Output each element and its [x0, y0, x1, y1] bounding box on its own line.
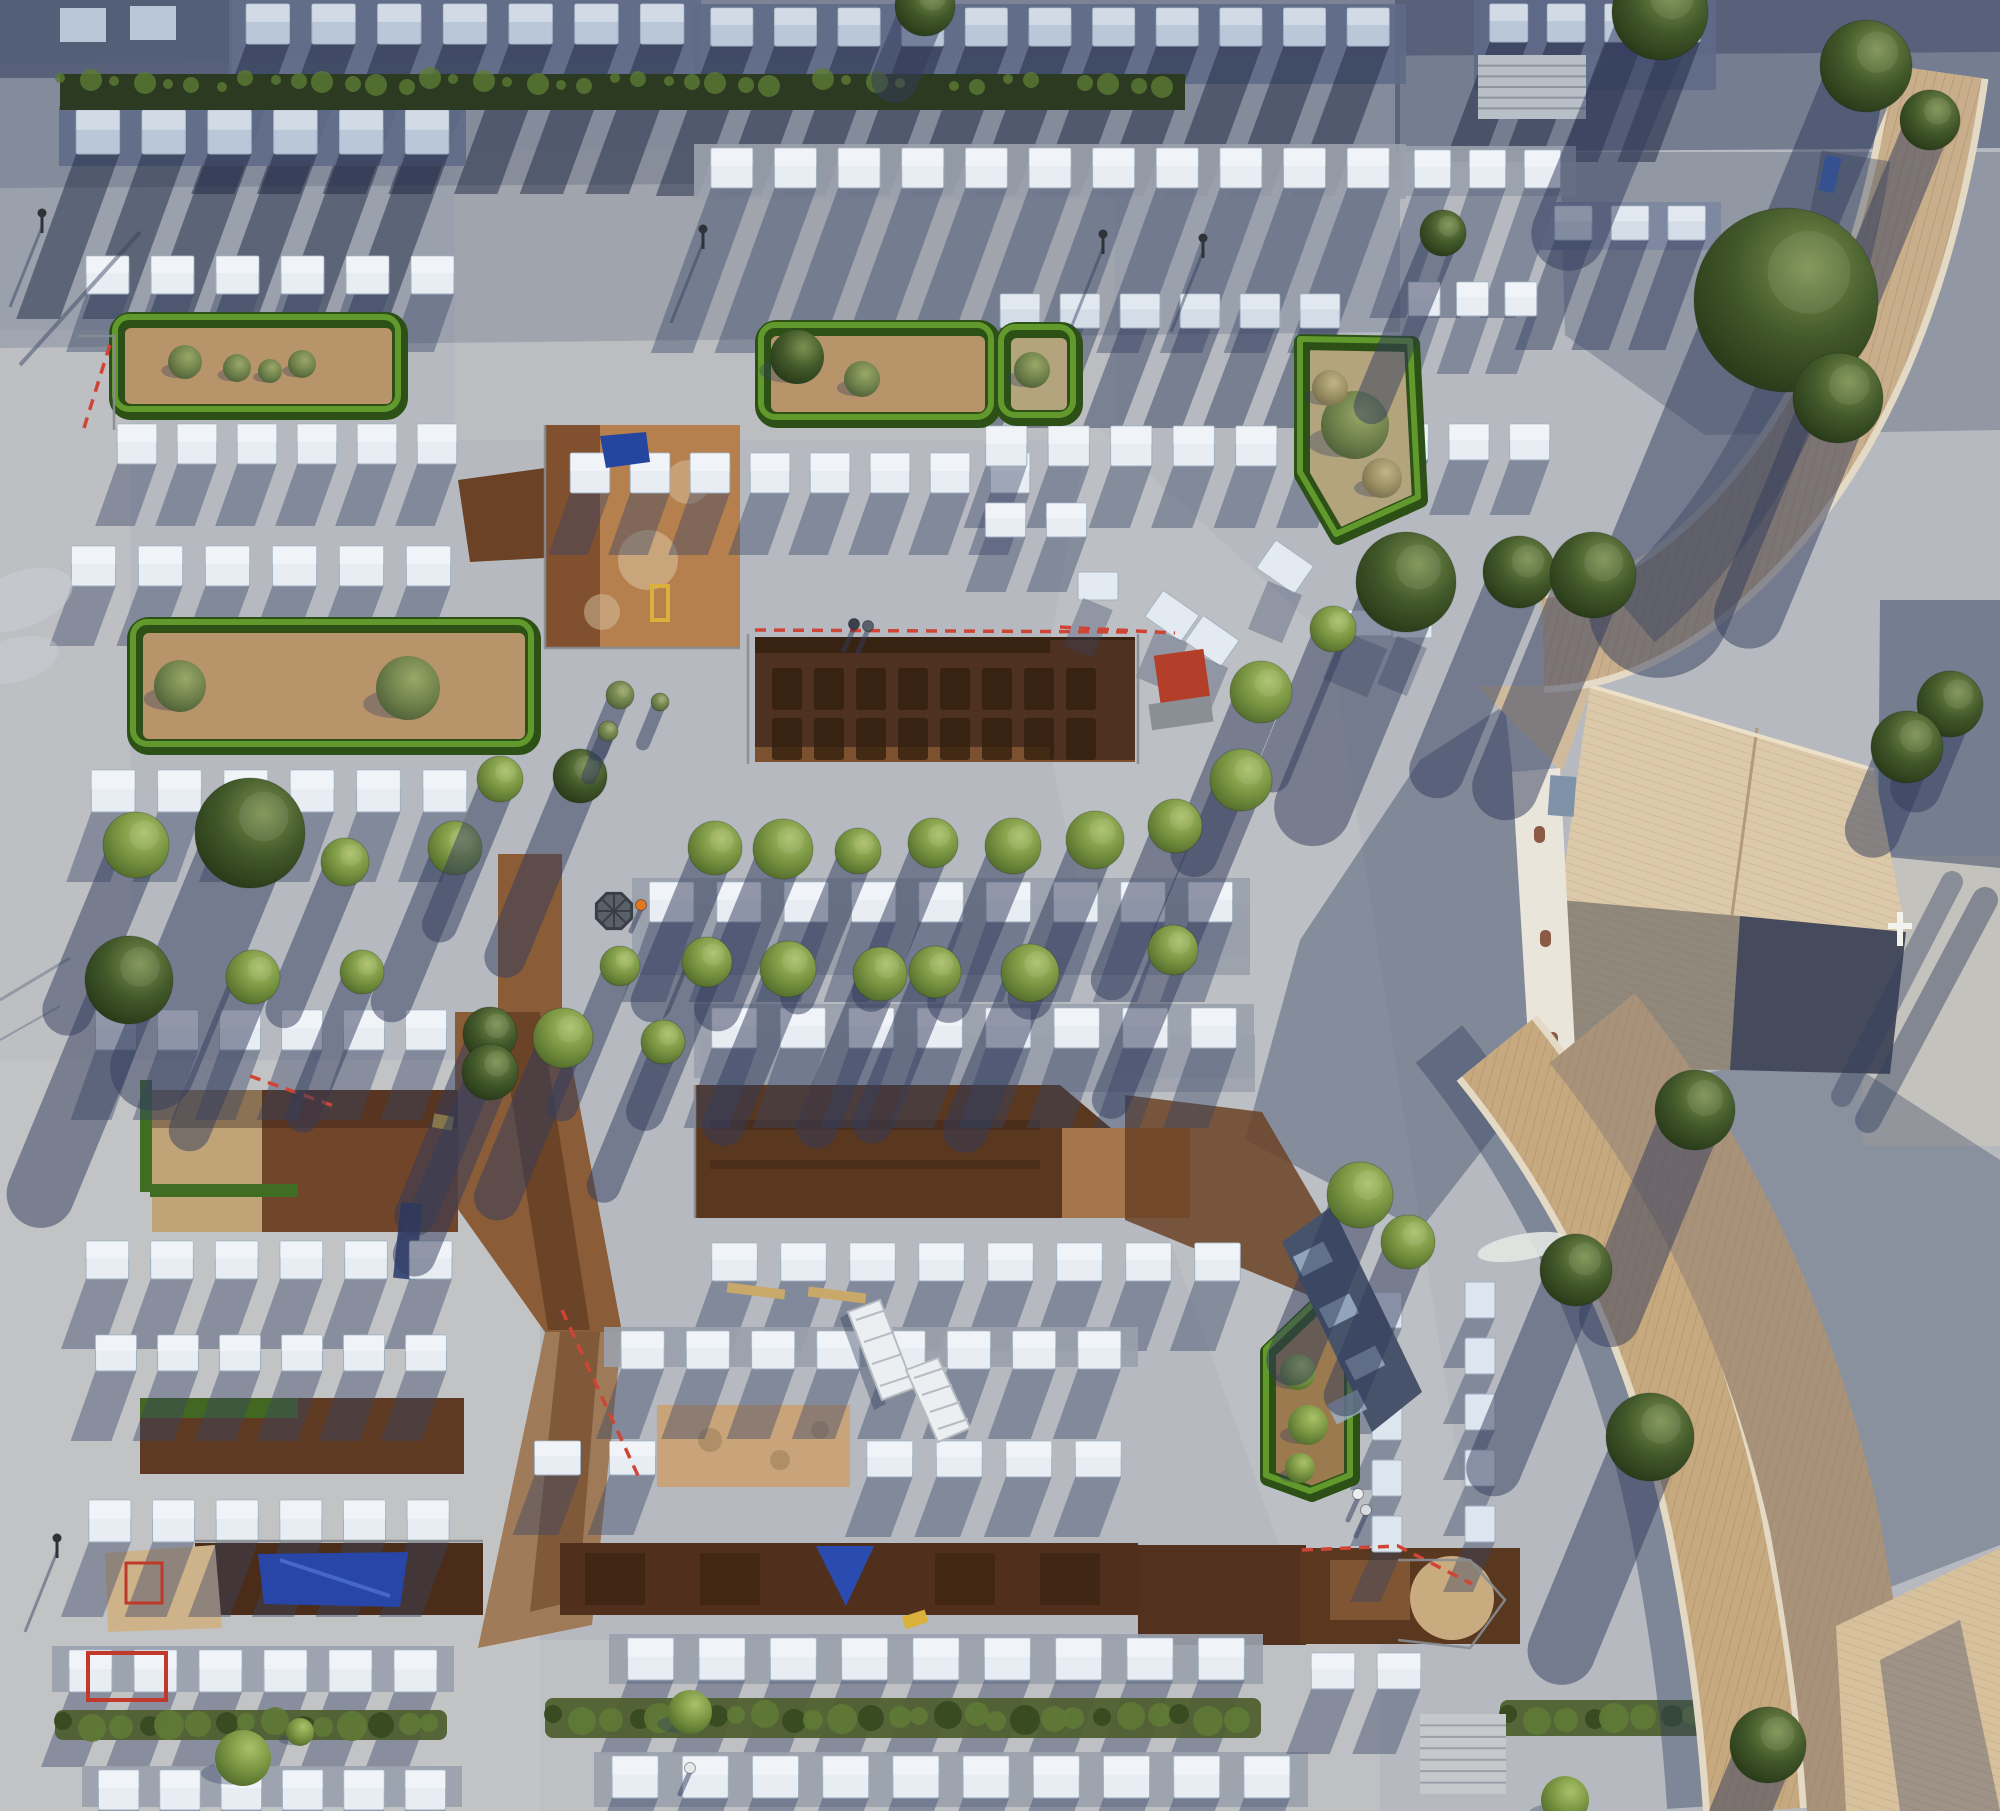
hedgerow-clump	[803, 1710, 823, 1730]
hedgerow-clump	[751, 1700, 779, 1728]
tomb-cover-highlight	[407, 1500, 449, 1519]
hedgerow-clump	[78, 1714, 106, 1742]
shape	[1540, 930, 1551, 947]
hedge-top-lit	[502, 77, 512, 87]
tomb-cover-highlight	[986, 426, 1027, 444]
hedge-top-lit	[704, 72, 726, 94]
tree-highlight	[1396, 545, 1441, 590]
tomb-cover-highlight	[1668, 206, 1705, 221]
tomb-cover-highlight	[71, 546, 115, 564]
tomb-cover-highlight	[177, 424, 217, 442]
tomb-cover-highlight	[711, 148, 753, 166]
tomb-cover-highlight	[1111, 426, 1152, 444]
grave-cut	[982, 718, 1012, 760]
tomb-cover-highlight	[1174, 1756, 1220, 1775]
tomb-cover-highlight	[357, 424, 397, 442]
tree-highlight	[120, 947, 160, 987]
tomb-cover-highlight	[1347, 148, 1389, 166]
hedgerow-clump	[420, 1714, 438, 1732]
tree-highlight	[340, 844, 362, 866]
shape	[1548, 775, 1577, 817]
tree-highlight	[1857, 32, 1898, 73]
tomb-cover-highlight	[208, 110, 251, 130]
tomb-cover-highlight	[378, 4, 421, 22]
tree-highlight	[617, 685, 630, 698]
tomb-cover-highlight	[963, 1756, 1009, 1775]
tree-highlight	[1829, 364, 1870, 405]
tomb-cover-highlight	[158, 1335, 199, 1351]
lamp-head	[38, 209, 47, 218]
grave-cut	[940, 668, 970, 710]
grave-cut	[940, 718, 970, 760]
grave-cut	[856, 668, 886, 710]
hedge-top-lit	[217, 82, 227, 92]
shrub	[154, 660, 206, 712]
tree-highlight	[239, 792, 289, 842]
grave-cut	[898, 718, 928, 760]
tomb-cover-highlight	[1524, 150, 1560, 167]
tomb-shadow	[1265, 588, 1285, 636]
tomb-cover-highlight	[220, 1335, 261, 1351]
shape	[584, 594, 620, 630]
hedgerow-clump	[1062, 1707, 1084, 1729]
hedgerow-clump	[1148, 1703, 1172, 1727]
tomb-cover-highlight	[965, 8, 1007, 25]
tree-highlight	[1024, 951, 1050, 977]
hedge-top-lit	[473, 70, 495, 92]
tomb-cover-highlight	[1127, 1638, 1173, 1657]
hedgerow-clump	[109, 1715, 133, 1739]
hedge-top-lit	[399, 79, 415, 95]
grave-cut	[982, 668, 1012, 710]
tomb-cover-highlight	[1156, 148, 1198, 166]
hedgerow-clump	[827, 1704, 857, 1734]
tree-highlight	[1328, 612, 1349, 633]
tomb-cover-highlight	[329, 1650, 372, 1669]
tomb-cover-highlight	[1126, 1243, 1172, 1260]
hedge-top-lit	[664, 76, 674, 86]
shape	[710, 1160, 1040, 1169]
tomb-cover-highlight	[1240, 294, 1280, 309]
tomb-cover-highlight	[965, 148, 1007, 166]
hedgerow-clump	[237, 1713, 255, 1731]
shrub	[288, 350, 316, 378]
hedge-top-lit	[1003, 74, 1013, 84]
tree-highlight	[358, 956, 378, 976]
hedgerow-clump	[1169, 1704, 1189, 1724]
tree-highlight	[129, 820, 159, 850]
hedgerow-clump	[154, 1710, 184, 1740]
tomb-cover-highlight	[344, 1335, 385, 1351]
hedgerow-clump	[185, 1711, 211, 1737]
tomb-cover-highlight	[1006, 1441, 1052, 1457]
tomb-cover-highlight	[1505, 282, 1537, 297]
hedgerow-clump	[1193, 1706, 1223, 1736]
hedge-top-lit	[448, 74, 458, 84]
tomb-cover-highlight	[312, 4, 355, 22]
tomb-cover-highlight	[1449, 424, 1489, 440]
tomb-cover-highlight	[1033, 1756, 1079, 1775]
lamp-head	[1099, 230, 1108, 239]
grave-cut	[898, 668, 928, 710]
tomb-cover-highlight	[823, 1756, 869, 1775]
tomb-cover-highlight	[76, 110, 119, 130]
tomb-cover-highlight	[712, 1243, 758, 1260]
tomb-cover-highlight	[711, 8, 753, 25]
tomb-cover-highlight	[1547, 4, 1585, 21]
hedge-top-lit	[291, 73, 307, 89]
tomb-cover-highlight	[947, 1331, 990, 1348]
tomb-cover-highlight	[1054, 1008, 1099, 1026]
tomb-cover-highlight	[1120, 294, 1160, 309]
tomb-cover-highlight	[867, 1441, 913, 1457]
hedge-top-lit	[134, 72, 156, 94]
tomb-cover	[1078, 572, 1118, 600]
tomb-cover-highlight	[340, 110, 383, 130]
hedgerow-clump	[965, 1702, 989, 1726]
lamp-head	[53, 1534, 62, 1543]
hedgerow-clump	[313, 1717, 333, 1737]
lamp-head	[699, 225, 708, 234]
tomb-cover-highlight	[160, 1770, 200, 1788]
tomb-cover-highlight	[919, 1243, 965, 1260]
hedge-top-lit	[949, 81, 959, 91]
shrub	[1288, 1405, 1328, 1445]
tomb-cover	[1465, 1506, 1495, 1542]
hedgerow-clump	[1117, 1702, 1145, 1730]
hedge-top-lit	[556, 80, 566, 90]
hedge-top-lit	[55, 73, 65, 83]
tomb-cover-highlight	[575, 4, 618, 22]
tomb-cover-highlight	[750, 453, 790, 471]
hedgerow-clump	[599, 1708, 623, 1732]
tomb-cover-highlight	[346, 256, 389, 273]
tomb-cover-highlight	[1000, 294, 1040, 309]
shrub	[376, 656, 440, 720]
tomb-cover-highlight	[237, 424, 277, 442]
hedgerow-clump	[1010, 1705, 1040, 1735]
tomb-cover-highlight	[1046, 503, 1086, 518]
tomb-cover	[1465, 1282, 1495, 1318]
tomb-cover-highlight	[1093, 148, 1135, 166]
hedge-top-lit	[345, 76, 361, 92]
tomb-cover-highlight	[152, 1500, 194, 1519]
tree-highlight	[659, 1026, 679, 1046]
hedgerow-clump	[54, 1712, 72, 1730]
hedge-top-lit	[758, 75, 780, 97]
tomb-cover-highlight	[902, 148, 944, 166]
tree-highlight	[484, 1051, 509, 1076]
tomb-cover-highlight	[1284, 8, 1326, 25]
tomb-cover-highlight	[423, 770, 467, 789]
shape	[700, 1553, 760, 1605]
tree-highlight	[875, 954, 899, 978]
hedgerow-clump	[934, 1701, 962, 1729]
tomb-cover-highlight	[216, 1500, 258, 1519]
tomb-cover-highlight	[274, 110, 317, 130]
tomb-cover-highlight	[838, 148, 880, 166]
shrub	[258, 359, 282, 383]
tomb-cover-highlight	[158, 770, 202, 789]
tomb-cover-highlight	[1469, 150, 1505, 167]
hedgerow-clump	[1523, 1707, 1551, 1735]
grave-cut	[1024, 668, 1054, 710]
shrub	[1285, 1453, 1315, 1483]
tomb-cover-highlight	[842, 1638, 888, 1657]
hedge-top-lit	[311, 71, 333, 93]
tomb-cover-highlight	[936, 1441, 982, 1457]
shrub	[770, 330, 824, 384]
hedge-top-lit	[1023, 72, 1039, 88]
tree-highlight	[658, 695, 666, 703]
tomb-cover-highlight	[838, 8, 880, 25]
tomb-cover-highlight	[216, 256, 259, 273]
hedgerow-clump	[261, 1707, 289, 1735]
hedge-top-lit	[1131, 78, 1147, 94]
tomb-cover-highlight	[893, 1756, 939, 1775]
tree-highlight	[616, 951, 634, 969]
tomb-cover-highlight	[612, 1756, 658, 1775]
hedged-plot	[133, 622, 533, 747]
tree-highlight	[1353, 1170, 1383, 1200]
tree-highlight	[1007, 825, 1032, 850]
tree-highlight	[1943, 679, 1973, 709]
tomb-cover-highlight	[215, 1241, 258, 1258]
tree-highlight	[777, 827, 804, 854]
hedge-dark	[60, 74, 1185, 110]
shrub	[223, 354, 251, 382]
grave-cut	[1024, 718, 1054, 760]
shape	[1138, 1545, 1306, 1645]
tomb-cover-highlight	[142, 110, 185, 130]
shape	[585, 1553, 645, 1605]
tomb-cover-highlight	[850, 1243, 896, 1260]
tomb-cover-highlight	[1013, 1331, 1056, 1348]
tree-highlight	[557, 1016, 584, 1043]
tomb-cover-highlight	[1198, 1638, 1244, 1657]
tomb-cover-highlight	[1029, 8, 1071, 25]
tomb-cover-highlight	[1236, 426, 1277, 444]
tomb-cover-highlight	[535, 1441, 581, 1456]
tomb-cover-highlight	[1220, 8, 1262, 25]
tomb-cover-highlight	[411, 256, 454, 273]
tomb-cover-highlight	[640, 4, 683, 22]
shape	[458, 468, 545, 562]
tree-highlight	[928, 824, 951, 847]
tomb-cover-highlight	[1414, 150, 1450, 167]
shrub	[844, 361, 880, 397]
tree-highlight	[1089, 818, 1115, 844]
hedge-top-lit	[576, 78, 592, 94]
tomb-cover-highlight	[1173, 426, 1214, 444]
tomb-cover-highlight	[1244, 1756, 1290, 1775]
tree-highlight	[702, 943, 725, 966]
hedgerow-clump	[544, 1705, 562, 1723]
tree-highlight	[1900, 720, 1932, 752]
tree-highlight	[1768, 231, 1851, 314]
tomb-cover-highlight	[280, 1241, 323, 1258]
shrub	[1362, 458, 1402, 498]
tomb-cover-highlight	[1029, 148, 1071, 166]
tomb-cover-highlight	[1220, 148, 1262, 166]
grave-cut	[814, 668, 844, 710]
tree-highlight	[1438, 216, 1459, 237]
tomb-cover-highlight	[282, 1335, 323, 1351]
tomb-cover-highlight	[1093, 8, 1135, 25]
tomb-cover-highlight	[339, 546, 383, 564]
tomb-cover-highlight	[781, 1243, 827, 1260]
aerial-photo-stage: Aerial top-down drone photograph of a Me…	[0, 0, 2000, 1811]
tomb-cover-highlight	[1195, 1243, 1241, 1260]
hedgerow-clump	[568, 1707, 596, 1735]
tomb-cover	[1465, 1338, 1495, 1374]
person	[1361, 1505, 1372, 1516]
shrub	[168, 345, 202, 379]
tomb-cover-highlight	[752, 1331, 795, 1348]
tomb-cover-highlight	[264, 1650, 307, 1669]
tomb-cover-highlight	[1078, 1331, 1121, 1348]
tomb-cover-highlight	[281, 256, 324, 273]
person	[685, 1763, 696, 1774]
hedge-top-lit	[630, 71, 646, 87]
shape	[60, 8, 106, 42]
tomb-cover-highlight	[272, 546, 316, 564]
tomb-cover-highlight	[1075, 1441, 1121, 1457]
shrub	[1312, 370, 1348, 406]
shape	[1730, 916, 1906, 1074]
tree-highlight	[485, 1014, 509, 1038]
tomb-cover-highlight	[1056, 1638, 1102, 1657]
shrub	[1014, 352, 1050, 388]
hedgerow-clump	[727, 1706, 745, 1724]
tomb-cover-highlight	[343, 1500, 385, 1519]
tree-highlight	[1641, 1404, 1681, 1444]
tomb-cover-highlight	[443, 4, 486, 22]
bush	[668, 1690, 712, 1734]
tomb-cover-highlight	[290, 770, 334, 789]
shape	[770, 1450, 790, 1470]
hedgerow-clump	[782, 1709, 806, 1733]
tomb-cover-highlight	[151, 1241, 194, 1258]
hedge-top-lit	[527, 73, 549, 95]
hedged-plot	[115, 317, 400, 412]
hedgerow-clump	[399, 1713, 421, 1735]
hedge-top-lit	[237, 70, 253, 86]
tomb-cover-highlight	[405, 1770, 445, 1788]
hedged-plot	[1001, 327, 1075, 418]
tomb-cover-highlight	[988, 1243, 1034, 1260]
tomb-cover-highlight	[1156, 8, 1198, 25]
tree-highlight	[1255, 669, 1283, 697]
hedge-top-lit	[738, 77, 754, 93]
tomb-cover-highlight	[774, 8, 816, 25]
hedge-top-lit	[80, 69, 102, 91]
tomb-cover-highlight	[394, 1650, 437, 1669]
tomb-cover-highlight	[628, 1638, 674, 1657]
tomb-cover-highlight	[621, 1331, 664, 1348]
tomb-cover-highlight	[930, 453, 970, 471]
tomb-cover-highlight	[810, 453, 850, 471]
tomb-cover-highlight	[1490, 4, 1528, 21]
cemetery-aerial-photo	[0, 0, 2000, 1811]
tomb-cover-highlight	[686, 1331, 729, 1348]
tomb-cover-highlight	[985, 503, 1025, 518]
hedge-top-lit	[365, 74, 387, 96]
shape	[130, 6, 176, 40]
tomb-cover-highlight	[610, 1441, 656, 1456]
tomb-cover-highlight	[406, 1010, 447, 1028]
hedge-border	[117, 320, 400, 412]
tree-highlight	[1687, 1080, 1723, 1116]
tomb-cover-highlight	[699, 1638, 745, 1657]
bush	[286, 1718, 314, 1746]
tree-highlight	[1569, 1243, 1601, 1275]
grave-cut	[772, 718, 802, 760]
grave-cut	[1066, 668, 1096, 710]
hedge-top-lit	[684, 74, 700, 90]
tomb-cover-highlight	[280, 1500, 322, 1519]
grave-cut	[772, 668, 802, 710]
hedgerow-clump	[1554, 1708, 1578, 1732]
cast-shadow	[0, 0, 232, 78]
tomb-cover-highlight	[1457, 282, 1489, 297]
tomb-cover-highlight	[1104, 1756, 1150, 1775]
shape	[1534, 826, 1545, 843]
tree-highlight	[495, 762, 516, 783]
tomb-cover-highlight	[1300, 294, 1340, 309]
hedge-top-lit	[109, 76, 119, 86]
tomb-cover-highlight	[357, 770, 401, 789]
hedge-top-lit	[812, 68, 834, 90]
tomb-cover-highlight	[770, 1638, 816, 1657]
tomb-cover-highlight	[199, 1650, 242, 1669]
tomb-cover-highlight	[91, 770, 135, 789]
hedge-top-lit	[841, 75, 851, 85]
tree-highlight	[248, 957, 272, 981]
hedge-top-lit	[271, 75, 281, 85]
hedgerow-clump	[986, 1711, 1006, 1731]
tomb-cover-highlight	[913, 1638, 959, 1657]
tree-highlight	[853, 834, 874, 855]
tree-highlight	[1924, 98, 1951, 125]
hedged-plot	[759, 325, 993, 420]
hedge-top-lit	[969, 79, 985, 95]
tomb-cover-highlight	[1377, 1653, 1421, 1669]
tomb-cover-highlight	[138, 546, 182, 564]
tomb-cover-highlight	[417, 424, 457, 442]
hedgerow-clump	[368, 1712, 394, 1738]
hedgerow-clump	[1630, 1704, 1656, 1730]
lamp-head	[1199, 234, 1208, 243]
person	[636, 900, 647, 911]
tomb-cover-highlight	[282, 1770, 322, 1788]
tree-highlight	[1512, 545, 1544, 577]
hedge-top-lit	[419, 67, 441, 89]
tomb-cover-highlight	[406, 1335, 447, 1351]
hedgerow-clump	[337, 1711, 367, 1741]
hedge-top-lit	[610, 73, 620, 83]
well-grate	[595, 892, 633, 930]
tomb-cover-highlight	[509, 4, 552, 22]
hedgerow-clump	[216, 1712, 238, 1734]
person	[849, 619, 860, 630]
tomb-cover-highlight	[151, 256, 194, 273]
hedge-top-lit	[163, 79, 173, 89]
tomb-cover-highlight	[297, 424, 337, 442]
tomb-cover-highlight	[1057, 1243, 1103, 1260]
person	[1353, 1489, 1364, 1500]
tomb-cover-highlight	[96, 1335, 137, 1351]
